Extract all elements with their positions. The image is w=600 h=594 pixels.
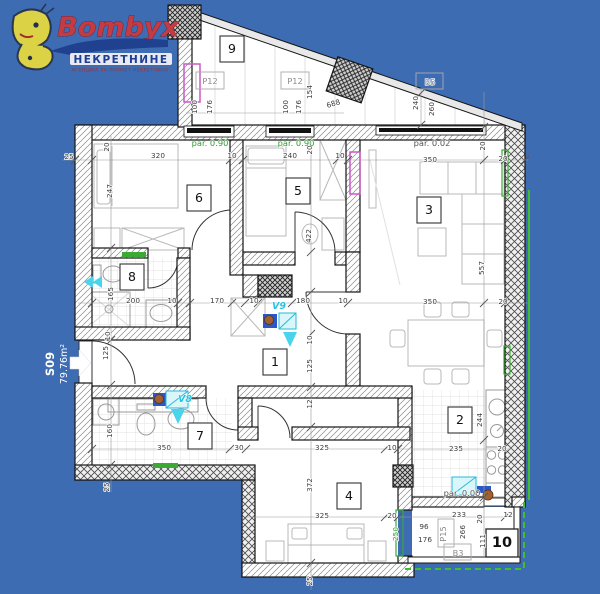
wall-room4-bottom [242,563,414,577]
room-label-3: 3 [425,202,433,217]
logo-subtitle: НЕКРЕТНИНЕ [73,54,168,66]
dimension-label: 320 [151,151,165,160]
logo-brand: Bombyx [57,12,180,43]
dimension-label: 20 [475,514,484,524]
dimension-label: 176 [205,100,214,114]
parapet-annotation: par. 0.02 [414,138,451,148]
dimension-label: 20 [478,141,487,151]
logo: Bombyx НЕКРЕТНИНЕ АГЕНЦИЈА ЗА ПРОМЕТ НЕК… [13,4,181,74]
dimension-label: 25 [305,576,314,585]
dimension-label: 244 [475,413,484,427]
room-label-1: 1 [271,354,279,369]
dimension-label: 176 [294,100,303,114]
mascot-icon [13,4,54,69]
dimension-label: 250 [391,527,400,541]
tag-label-p15: P15 [438,526,448,541]
dimension-label: 25 [64,152,73,161]
pillar [393,465,413,487]
dimension-label: 350 [423,155,437,164]
dimension-label: 10 [305,335,314,345]
dimension-label: 165 [106,287,115,301]
parapet-annotation: par. 0.90 [278,138,315,148]
dimension-label: 350 [423,297,437,306]
dimension-label: 170 [210,296,224,305]
dimension-label: 125 [101,346,110,360]
dimension-label: 10 [167,296,177,305]
dimension-label: 247 [105,184,114,198]
dimension-label: 180 [296,296,310,305]
wall-room8-bottom [75,327,190,340]
dimension-label: 96 [419,522,429,531]
window-icon [376,126,486,135]
dimension-label: 372 [305,478,314,492]
dimension-label: 233 [452,510,466,519]
dimension-label: 111 [478,534,487,548]
window-icon [184,126,234,137]
dimension-label: 12 [305,399,314,408]
dimension-label: 10 [227,151,237,160]
dimension-label: 25 [102,482,111,491]
vent-marker-green [122,252,146,257]
dimension-label: 422 [304,229,313,243]
room-label-6: 6 [195,190,203,205]
dimension-label: 10 [335,151,345,160]
room-label-10: 10 [492,535,512,551]
dimension-label: 12 [503,510,512,519]
unit-code: S09 [43,352,57,376]
dimension-label: 235 [449,444,463,453]
logo-tagline: АГЕНЦИЈА ЗА ПРОМЕТ НЕКРЕТНИНА [72,68,169,74]
vent-label-v9: V9 [272,301,286,312]
shaft [258,275,292,297]
room-label-7: 7 [196,428,204,443]
dimension-label: 100 [281,100,290,114]
wall-room4-top [292,427,410,440]
room-label-8: 8 [128,269,136,284]
room-label-2: 2 [456,412,464,427]
tag-label-b3: B3 [453,548,464,558]
dimension-label: 30 [234,443,244,452]
dimension-label: 10 [249,296,259,305]
tag-label-p12: P12 [287,76,302,86]
room-label-9: 9 [228,41,236,56]
tag-label-b5: B5 [425,77,436,87]
dimension-label: 20 [498,154,508,163]
unit-area: 79.76m² [59,344,70,384]
floor-plan-page: 1001761001761546882402602520320102401020… [0,0,600,594]
room-label-5: 5 [294,183,302,198]
dimension-label: 125 [305,359,314,373]
wall-room5-right [346,140,360,252]
dimension-label: 325 [315,443,329,452]
dimension-label: 240 [411,96,420,110]
dimension-label: 240 [283,151,297,160]
dimension-label: 20 [498,297,508,306]
dimension-label: 20 [497,444,507,453]
floor-plan-drawing: 1001761001761546882402602520320102401020… [0,0,600,594]
vent-marker-green [153,463,178,468]
dimension-label: 325 [315,511,329,520]
tag-label-p12: P12 [202,76,217,86]
dimension-label: 154 [305,85,314,99]
dimension-label: 20 [387,511,397,520]
dimension-label: 10 [338,296,348,305]
dimension-label: 10 [387,443,397,452]
parapet-annotation: par. 0.00 [444,488,481,498]
dimension-label: 160 [105,424,114,438]
unit-label: S09 79.76m² [43,344,70,384]
dimension-label: 10 [103,331,112,341]
dimension-label: 20 [102,142,111,152]
room-label-4: 4 [345,488,353,503]
dimension-label: 260 [427,102,436,116]
dimension-label: 557 [477,261,486,275]
window-icon [266,126,314,137]
parapet-annotation: par. 0.90 [192,138,229,148]
dimension-label: 100 [190,100,199,114]
dimension-label: 200 [126,296,140,305]
dimension-label: 266 [458,525,467,539]
dimension-label: 176 [418,535,432,544]
vent-label-v8: V8 [178,394,192,405]
dimension-label: 350 [157,443,171,452]
